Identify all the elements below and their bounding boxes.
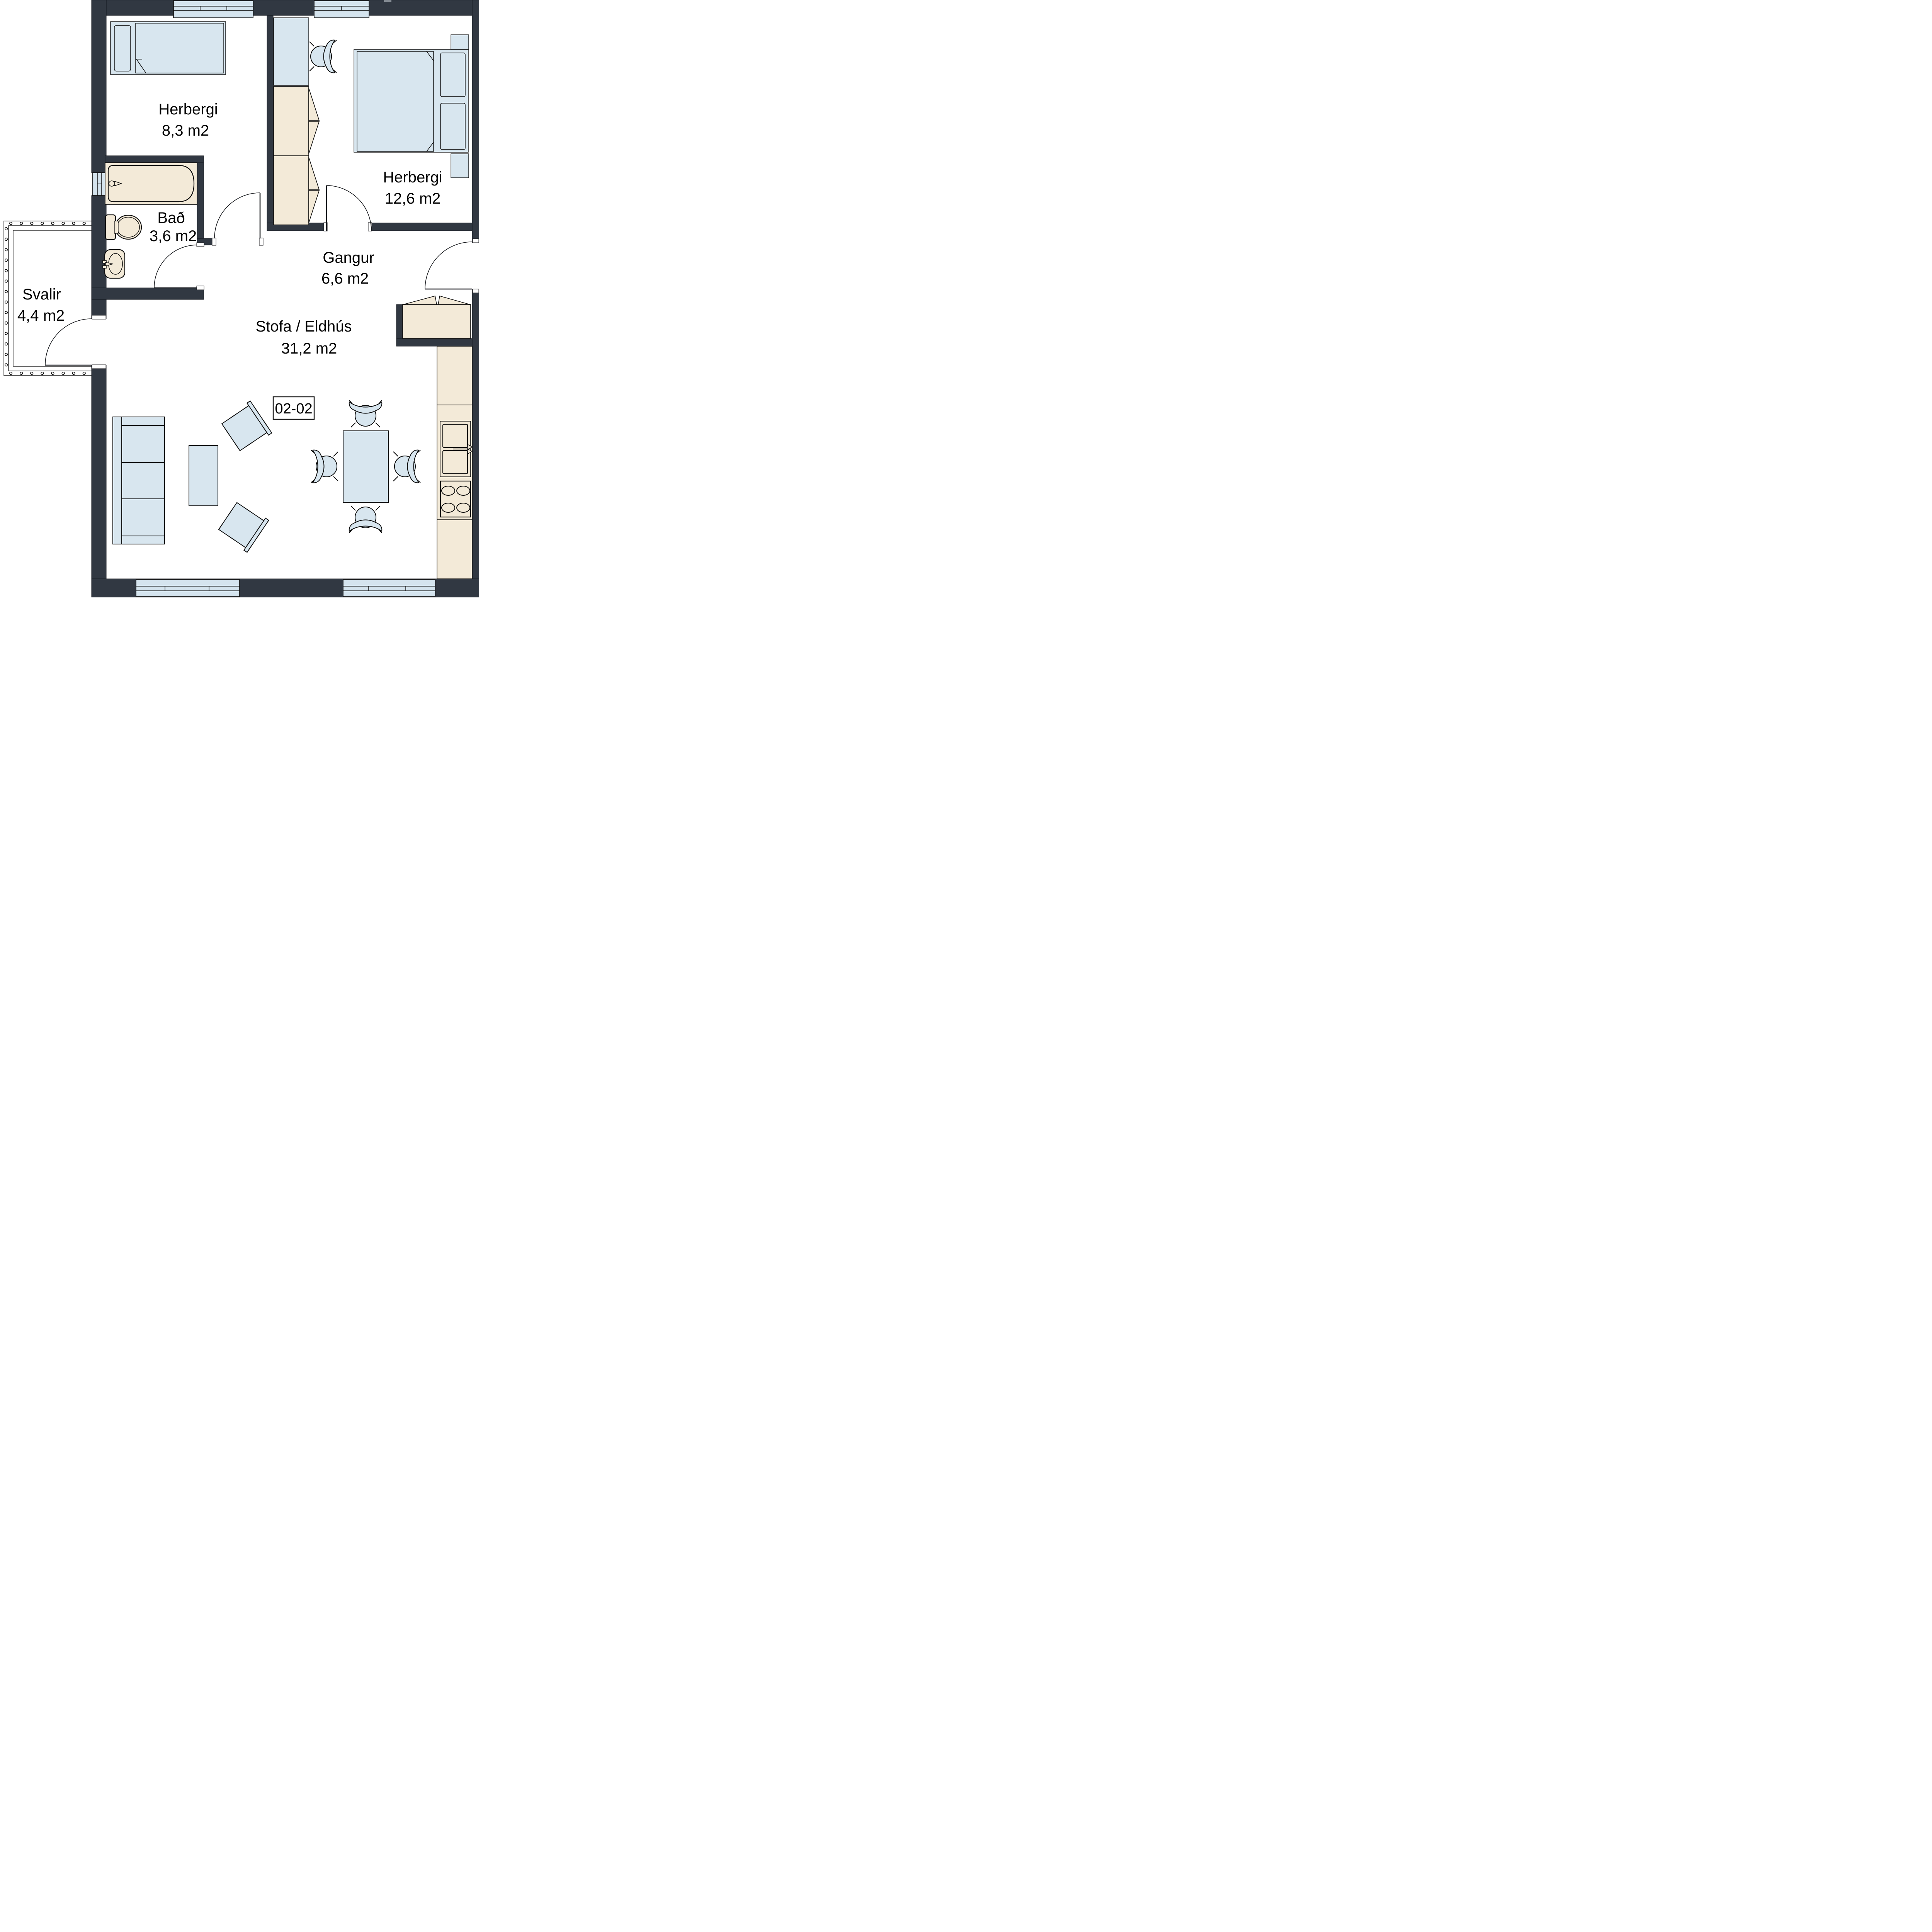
- dining-chair-right: [393, 450, 420, 483]
- label-svalir: Svalir 4,4 m2: [17, 286, 65, 324]
- bathtub: [105, 163, 197, 204]
- sofa: [113, 417, 165, 544]
- wall-bathroom-bottom: [92, 288, 204, 299]
- wall-left-upper: [92, 0, 106, 173]
- wall-left-lower: [92, 365, 106, 579]
- label-bad: Bað 3,6 m2: [150, 209, 197, 245]
- room-area: 6,6 m2: [321, 270, 369, 287]
- window-bedroom2: [314, 1, 369, 18]
- dining-chair-bottom: [349, 506, 382, 533]
- window-bathroom: [92, 173, 106, 196]
- window-kitchen: [343, 580, 435, 597]
- nightstand-bottom: [451, 154, 469, 178]
- coffee-table: [189, 446, 218, 506]
- room-area: 12,6 m2: [385, 190, 441, 207]
- room-area: 4,4 m2: [17, 307, 65, 324]
- wall-left-middle: [92, 196, 106, 319]
- apartment-number: 02-02: [275, 401, 312, 417]
- stove: [440, 481, 471, 517]
- wall-partition-bedrooms: [267, 15, 273, 231]
- armchair-bottom: [217, 500, 269, 552]
- room-name: Bað: [157, 209, 185, 226]
- label-herbergi-1: Herbergi 8,3 m2: [158, 101, 218, 139]
- wall-right-lower: [472, 289, 479, 597]
- window-bedroom1: [173, 1, 253, 18]
- room-name: Stofa / Eldhús: [255, 318, 352, 335]
- window-living-left: [136, 580, 240, 597]
- room-area: 31,2 m2: [281, 340, 337, 357]
- dining-set: [311, 400, 420, 533]
- desk-chair: [310, 40, 337, 73]
- wall-right-upper: [472, 0, 479, 243]
- wall-bathroom-right: [197, 163, 204, 246]
- door-bedroom1: [212, 193, 263, 245]
- nightstand-top: [451, 35, 469, 49]
- wall-closet-side: [396, 304, 403, 338]
- desk: [274, 18, 309, 85]
- floor-plan: Herbergi 8,3 m2 Herbergi 12,6 m2 Bað 3,6…: [0, 0, 479, 597]
- single-bed: [111, 22, 226, 75]
- dining-chair-left: [311, 450, 338, 483]
- label-herbergi-2: Herbergi 12,6 m2: [383, 169, 442, 207]
- hall-closet: [403, 296, 471, 338]
- wall-bedroom2-south-right: [371, 223, 472, 231]
- wall-top: [92, 0, 479, 15]
- tub-faucet-icon: [109, 181, 114, 186]
- dining-chair-top: [349, 400, 382, 427]
- wall-bathroom-top: [105, 156, 204, 163]
- room-name: Herbergi: [383, 169, 442, 186]
- apartment-number-badge: 02-02: [273, 397, 314, 419]
- room-area: 8,3 m2: [162, 122, 209, 139]
- washbasin: [103, 250, 125, 278]
- room-name: Herbergi: [158, 101, 218, 118]
- toilet: [105, 215, 141, 240]
- room-name: Svalir: [22, 286, 61, 303]
- wardrobe: [274, 87, 319, 225]
- dining-table: [343, 431, 388, 502]
- room-name: Gangur: [323, 249, 374, 266]
- label-gangur: Gangur 6,6 m2: [321, 249, 374, 287]
- wall-stub-gray: [384, 0, 391, 2]
- double-bed: [354, 35, 469, 178]
- room-area: 3,6 m2: [150, 228, 197, 245]
- door-bedroom2: [324, 185, 372, 231]
- door-bathroom: [154, 243, 204, 290]
- door-entry: [425, 239, 479, 293]
- armchair-top: [220, 401, 272, 453]
- label-stofa-eldhus: Stofa / Eldhús 31,2 m2: [255, 318, 352, 357]
- kitchen-sink: [440, 421, 472, 477]
- wall-closet-bottom: [396, 338, 472, 346]
